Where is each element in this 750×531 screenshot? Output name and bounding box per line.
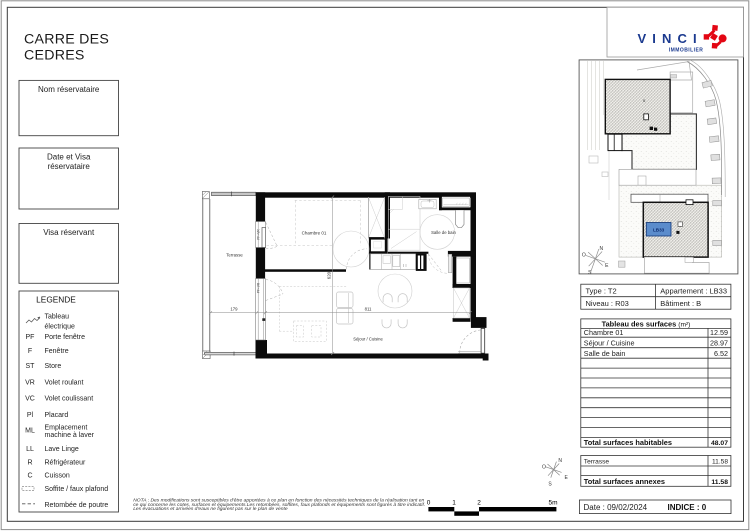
svg-text:Pl: Pl <box>27 412 34 419</box>
svg-text:Terrasse: Terrasse <box>226 253 243 258</box>
svg-text:Séjour / Cuisine: Séjour / Cuisine <box>584 339 635 348</box>
svg-text:Nom réservataire: Nom réservataire <box>38 85 100 94</box>
svg-text:PF: PF <box>26 334 35 341</box>
svg-text:Appartement : LB33: Appartement : LB33 <box>660 287 727 296</box>
svg-text:Terrasse: Terrasse <box>584 459 610 466</box>
svg-text:Total surfaces habitables: Total surfaces habitables <box>584 438 672 447</box>
svg-text:LB33: LB33 <box>653 228 665 233</box>
svg-text:Volet roulant: Volet roulant <box>45 379 84 386</box>
svg-text:Lave Linge: Lave Linge <box>45 446 79 453</box>
svg-text:Date et Visa: Date et Visa <box>47 153 91 162</box>
svg-text:Total surfaces annexes: Total surfaces annexes <box>584 477 665 486</box>
svg-text:48.07: 48.07 <box>711 440 728 447</box>
svg-text:INDICE : 0: INDICE : 0 <box>668 503 707 512</box>
svg-text:Tableau: Tableau <box>45 314 70 321</box>
svg-text:C: C <box>27 472 32 479</box>
svg-text:F: F <box>28 348 32 355</box>
svg-text:Type : T2: Type : T2 <box>586 287 617 296</box>
svg-text:5m: 5m <box>548 500 557 507</box>
svg-text:VR: VR <box>25 379 35 386</box>
svg-text:Séjour / Cuisine: Séjour / Cuisine <box>353 336 383 341</box>
svg-text:N: N <box>558 458 562 464</box>
svg-text:R: R <box>27 459 32 466</box>
svg-text:6.52: 6.52 <box>714 349 728 358</box>
svg-text:Salle de bain: Salle de bain <box>584 349 626 358</box>
svg-text:Porte fenêtre: Porte fenêtre <box>45 334 86 341</box>
svg-text:machine à laver: machine à laver <box>45 432 95 439</box>
svg-text:Emplacement: Emplacement <box>45 424 88 431</box>
svg-text:ST: ST <box>26 363 36 370</box>
svg-text:ML: ML <box>25 428 35 435</box>
svg-text:Retombée de poutre: Retombée de poutre <box>45 502 109 509</box>
svg-text:Tableau des surfaces (m²): Tableau des surfaces (m²) <box>602 319 691 328</box>
svg-text:Chambre 01: Chambre 01 <box>584 328 624 337</box>
svg-text:PF+VR: PF+VR <box>256 229 260 240</box>
svg-text:N: N <box>599 246 603 252</box>
svg-text:11.58: 11.58 <box>712 459 728 466</box>
svg-text:LL: LL <box>26 446 34 453</box>
svg-text:Fenêtre: Fenêtre <box>45 348 69 355</box>
svg-text:Bâtiment : B: Bâtiment : B <box>660 299 701 308</box>
svg-text:620: 620 <box>327 271 332 279</box>
svg-text:179: 179 <box>230 306 238 311</box>
svg-text:811: 811 <box>365 306 372 311</box>
svg-text:Store: Store <box>45 363 62 370</box>
svg-text:12.59: 12.59 <box>710 328 728 337</box>
svg-text:28.97: 28.97 <box>710 339 728 348</box>
svg-text:S: S <box>548 482 552 488</box>
svg-text:2: 2 <box>477 500 481 507</box>
svg-text:Volet coulissant: Volet coulissant <box>45 395 94 402</box>
svg-text:Date : 09/02/2024: Date : 09/02/2024 <box>584 503 648 512</box>
svg-text:CEDRES: CEDRES <box>24 47 85 63</box>
svg-text:Visa réservant: Visa réservant <box>43 228 95 237</box>
svg-text:Placard: Placard <box>45 412 69 419</box>
svg-text:E: E <box>565 475 569 481</box>
svg-text:O: O <box>582 253 586 259</box>
svg-text:PF+VR: PF+VR <box>256 282 260 293</box>
svg-text:Réfrigérateur: Réfrigérateur <box>45 459 87 466</box>
svg-text:Salle de bain: Salle de bain <box>431 230 456 235</box>
svg-text:0: 0 <box>427 500 431 507</box>
svg-text:LEGENDE: LEGENDE <box>36 294 76 304</box>
svg-text:réservataire: réservataire <box>48 162 91 171</box>
svg-text:Niveau : R03: Niveau : R03 <box>586 299 629 308</box>
svg-text:CARRE DES: CARRE DES <box>24 31 109 47</box>
svg-text:VINCI: VINCI <box>638 31 703 46</box>
svg-text:Les évacuations et arrivées d': Les évacuations et arrivées d'eaux ne fi… <box>133 506 288 512</box>
svg-text:O: O <box>542 465 546 471</box>
svg-text:VC: VC <box>25 395 35 402</box>
svg-text:Cuisson: Cuisson <box>45 472 70 479</box>
svg-text:Chambre 01: Chambre 01 <box>302 231 327 236</box>
svg-text:1: 1 <box>452 500 456 507</box>
svg-text:électrique: électrique <box>45 323 75 330</box>
svg-text:IMMOBILIER: IMMOBILIER <box>669 48 704 54</box>
svg-text:Soffite / faux plafond: Soffite / faux plafond <box>45 486 109 493</box>
svg-text:11.58: 11.58 <box>711 479 728 486</box>
